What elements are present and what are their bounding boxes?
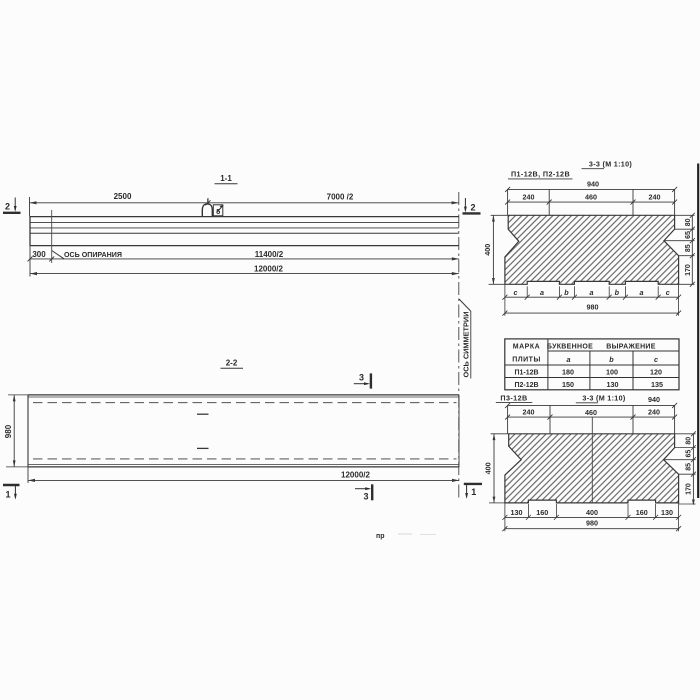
svg-text:П1-12В: П1-12В bbox=[514, 369, 538, 376]
svg-text:65: 65 bbox=[685, 231, 692, 239]
svg-text:3-3 (М 1:10): 3-3 (М 1:10) bbox=[582, 393, 625, 402]
svg-text:135: 135 bbox=[651, 380, 663, 389]
svg-text:80: 80 bbox=[685, 218, 692, 226]
svg-text:460: 460 bbox=[585, 408, 597, 417]
svg-text:130: 130 bbox=[511, 508, 523, 517]
svg-text:a: a bbox=[640, 288, 644, 297]
svg-text:b: b bbox=[609, 355, 614, 364]
svg-text:3: 3 bbox=[359, 373, 364, 383]
svg-text:12000/2: 12000/2 bbox=[254, 264, 283, 273]
svg-text:ВЫРАЖЕНИЕ: ВЫРАЖЕНИЕ bbox=[606, 343, 655, 350]
svg-text:c: c bbox=[654, 355, 658, 364]
svg-text:c: c bbox=[514, 288, 518, 297]
svg-text:130: 130 bbox=[661, 508, 673, 517]
svg-text:П1-12В, П2-12В: П1-12В, П2-12В bbox=[511, 170, 570, 179]
svg-text:1: 1 bbox=[471, 487, 476, 497]
svg-text:b: b bbox=[615, 288, 620, 297]
svg-text:a: a bbox=[540, 288, 544, 297]
svg-text:240: 240 bbox=[648, 408, 660, 417]
svg-text:3: 3 bbox=[363, 492, 368, 502]
svg-text:БУКВЕННОЕ: БУКВЕННОЕ bbox=[547, 343, 593, 350]
svg-text:150: 150 bbox=[562, 380, 574, 389]
svg-text:400: 400 bbox=[483, 244, 492, 256]
svg-text:b: b bbox=[564, 288, 569, 297]
svg-text:65: 65 bbox=[686, 450, 693, 458]
svg-text:7000 /2: 7000 /2 bbox=[327, 193, 354, 202]
svg-text:3-3 (М 1:10): 3-3 (М 1:10) bbox=[589, 160, 632, 169]
svg-text:2-2: 2-2 bbox=[226, 359, 238, 368]
svg-text:100: 100 bbox=[606, 367, 618, 376]
svg-text:1: 1 bbox=[5, 490, 10, 500]
svg-text:460: 460 bbox=[585, 193, 597, 202]
svg-text:ОСЬ ОПИРАНИЯ: ОСЬ ОПИРАНИЯ bbox=[64, 252, 122, 259]
svg-text:П2-12В: П2-12В bbox=[514, 382, 538, 389]
svg-text:11400/2: 11400/2 bbox=[255, 250, 284, 259]
svg-text:400: 400 bbox=[484, 462, 493, 474]
svg-text:940: 940 bbox=[587, 180, 599, 189]
svg-text:85: 85 bbox=[685, 244, 692, 252]
svg-text:c: c bbox=[666, 288, 670, 297]
svg-text:160: 160 bbox=[536, 508, 548, 517]
svg-text:1-1: 1-1 bbox=[220, 174, 232, 183]
svg-text:980: 980 bbox=[4, 424, 13, 438]
svg-text:940: 940 bbox=[648, 395, 660, 404]
svg-text:120: 120 bbox=[650, 367, 662, 376]
svg-text:980: 980 bbox=[586, 519, 598, 528]
svg-text:400: 400 bbox=[586, 508, 598, 517]
svg-text:П3-12В: П3-12В bbox=[500, 393, 527, 402]
svg-text:300: 300 bbox=[32, 250, 46, 259]
svg-text:2: 2 bbox=[5, 202, 10, 212]
svg-text:2500: 2500 bbox=[114, 192, 132, 201]
svg-text:240: 240 bbox=[523, 192, 535, 201]
svg-text:пр: пр bbox=[376, 533, 385, 540]
svg-text:2: 2 bbox=[470, 203, 475, 213]
svg-text:a: a bbox=[590, 288, 594, 297]
svg-text:85: 85 bbox=[686, 463, 693, 471]
svg-text:80: 80 bbox=[686, 437, 693, 445]
svg-text:160: 160 bbox=[636, 508, 648, 517]
svg-text:ОСЬ СИММЕТРИИ: ОСЬ СИММЕТРИИ bbox=[464, 312, 471, 378]
svg-text:130: 130 bbox=[607, 380, 619, 389]
svg-text:12000/2: 12000/2 bbox=[341, 471, 370, 480]
svg-text:180: 180 bbox=[562, 367, 574, 376]
svg-text:240: 240 bbox=[649, 192, 661, 201]
svg-text:170: 170 bbox=[685, 264, 692, 276]
svg-text:a: a bbox=[567, 355, 571, 364]
svg-text:980: 980 bbox=[587, 303, 599, 312]
svg-text:170: 170 bbox=[686, 483, 693, 495]
svg-text:ПЛИТЫ: ПЛИТЫ bbox=[512, 357, 541, 364]
svg-text:240: 240 bbox=[523, 408, 535, 417]
svg-text:МАРКА: МАРКА bbox=[513, 344, 540, 351]
svg-text:5: 5 bbox=[216, 207, 220, 216]
